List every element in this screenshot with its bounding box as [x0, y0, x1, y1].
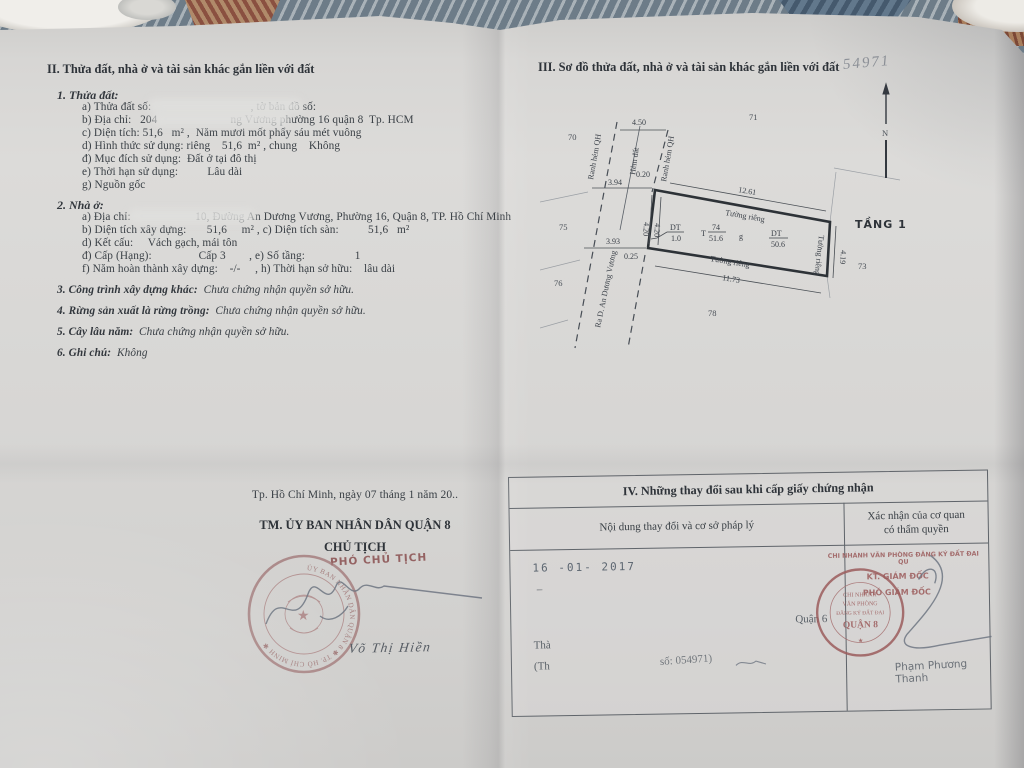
house-line-f: f) Năm hoàn thành xây dựng: -/- , h) Thờ… — [82, 263, 395, 275]
dim-offset-bottom: 0.25 — [624, 252, 638, 261]
item5-value: Chưa chứng nhận quyền sở hữu. — [133, 326, 289, 338]
col-right-text-2: có thẩm quyền — [884, 522, 949, 537]
plot-number: 74 — [712, 223, 720, 232]
section4-col-right-header: Xác nhận của cơ quan có thẩm quyền — [844, 500, 988, 545]
chairman-signature — [250, 552, 490, 652]
label-alley-right: Ranh hẻm QH — [659, 135, 676, 182]
col-left-text: Nội dung thay đổi và cơ sở pháp lý — [599, 518, 754, 535]
svg-text:N: N — [882, 128, 888, 138]
parcel-71: 71 — [749, 112, 758, 122]
redaction-blob — [128, 209, 256, 223]
section4-col-left-header: Nội dung thay đổi và cơ sở pháp lý — [509, 503, 845, 551]
chairman-signer-name: Võ Thị Hiền — [314, 639, 466, 658]
wall-bottom-label: Tường riêng — [710, 254, 751, 269]
partial-number: số: 054971) — [660, 652, 713, 668]
house-line-dd: đ) Cấp (Hạng): Cấp 3 , e) Số tầng: 1 — [82, 250, 361, 262]
dim-left-outer: 4.20 — [641, 222, 651, 236]
item-other-construction: 3. Công trình xây dựng khác: Chưa chứng … — [57, 284, 354, 296]
plot-area: 51.6 — [709, 234, 723, 243]
seal2-star: ★ — [858, 637, 863, 644]
section4-table: IV. Những thay đổi sau khi cấp giấy chứn… — [508, 469, 992, 717]
date-line: Tp. Hồ Chí Minh, ngày 07 tháng 1 năm 20.… — [210, 489, 500, 501]
item-perennial: 5. Cây lâu năm: Chưa chứng nhận quyền sở… — [57, 326, 289, 338]
change-date-stamp: 16 -01- 2017 — [532, 560, 636, 575]
dt-left-label: DT — [670, 223, 681, 232]
col-right-text-1: Xác nhận của cơ quan — [867, 508, 965, 524]
dim-left-inner: 4.20 — [652, 223, 662, 237]
partial-text-2: (Th — [534, 660, 550, 672]
dt-right-value: 50.6 — [771, 240, 785, 249]
parcel-76: 76 — [554, 278, 563, 288]
dt-right-label: DT — [771, 229, 782, 238]
wall-top-label: Tường riêng — [725, 208, 766, 224]
plot-g-label: g — [739, 232, 743, 241]
land-line-dd: đ) Mục đích sử dụng: Đất ở tại đô thị — [82, 153, 257, 165]
house-line-b: b) Diện tích xây dựng: 51,6 m² , c) Diện… — [82, 224, 409, 236]
land-line-g: g) Nguồn gốc — [82, 179, 145, 191]
parcel-75: 75 — [559, 222, 568, 232]
label-alley-left: Ranh hẻm QH — [586, 133, 603, 180]
item4-label: 4. Rừng sản xuất là rừng trồng: — [57, 305, 210, 317]
item-note: 6. Ghi chú: Không — [57, 347, 148, 359]
dim-front-bottom: 3.93 — [606, 237, 620, 246]
floor-label: TẦNG 1 — [855, 217, 907, 231]
land-line-c: c) Diện tích: 51,6 m² , Năm mươi mốt phẩ… — [82, 127, 362, 139]
handwritten-squiggle — [734, 656, 768, 671]
cadastral-diagram: N 4.50 0.20 3.94 3.93 0.25 — [540, 80, 1010, 380]
item5-label: 5. Cây lâu năm: — [57, 326, 133, 338]
house-line-d: d) Kết cấu: Vách gạch, mái tôn — [82, 237, 237, 249]
dim-line-left-inner — [658, 197, 661, 245]
parcel-78: 78 — [708, 308, 717, 318]
item3-label: 3. Công trình xây dựng khác: — [57, 284, 198, 296]
section3-title: III. Sơ đồ thửa đất, nhà ở và tài sản kh… — [538, 60, 839, 75]
item6-value: Không — [111, 347, 147, 359]
authority-line: TM. ỦY BAN NHÂN DÂN QUẬN 8 — [205, 518, 505, 533]
dim-line-right — [833, 226, 836, 278]
label-street: Ra D. An Dương Vương — [593, 250, 618, 329]
partial-text-1: Thà — [534, 639, 551, 651]
dim-offset-top: 0.20 — [636, 170, 650, 179]
dim-edge-bottom: 11.73 — [722, 273, 741, 285]
plot-annotations: DT 1.0 T 74 51.6 g DT 50.6 — [667, 223, 788, 249]
dim-front-top: 3.94 — [608, 178, 622, 187]
item6-label: 6. Ghi chú: — [57, 347, 111, 359]
item-forest: 4. Rừng sản xuất là rừng trồng: Chưa chứ… — [57, 305, 366, 317]
dim-edge-right: 4.19 — [838, 250, 848, 265]
street-boundary — [628, 255, 645, 348]
parcel-boundary-line — [834, 168, 900, 180]
document-paper: II. Thửa đất, nhà ở và tài sản khác gắn … — [0, 0, 1024, 768]
dash-mark: – — [537, 583, 543, 595]
handwritten-number: 54971 — [842, 53, 891, 74]
item4-value: Chưa chứng nhận quyền sở hữu. — [210, 305, 366, 317]
wall-right-label: Tường riêng — [813, 235, 826, 276]
registrar-signer-name: Phạm Phương Thanh — [895, 657, 991, 686]
land-line-d: d) Hình thức sử dụng: riêng 51,6 m² , ch… — [82, 140, 340, 152]
redaction-blob — [148, 99, 303, 113]
plot-t-prefix: T — [701, 229, 706, 238]
parcel-70: 70 — [568, 132, 577, 142]
photo-of-land-certificate: II. Thửa đất, nhà ở và tài sản khác gắn … — [0, 0, 1024, 768]
registrar-signature — [868, 548, 995, 662]
land-line-e: e) Thời hạn sử dụng: Lâu dài — [82, 166, 242, 178]
dim-alley-width: 4.50 — [632, 118, 646, 127]
dt-left-value: 1.0 — [671, 234, 681, 243]
item3-value: Chưa chứng nhận quyền sở hữu. — [198, 284, 354, 296]
section2-title: II. Thửa đất, nhà ở và tài sản khác gắn … — [47, 62, 314, 77]
redaction-blob — [152, 112, 290, 126]
north-arrow: N — [882, 84, 889, 178]
parcel-73: 73 — [858, 261, 867, 271]
